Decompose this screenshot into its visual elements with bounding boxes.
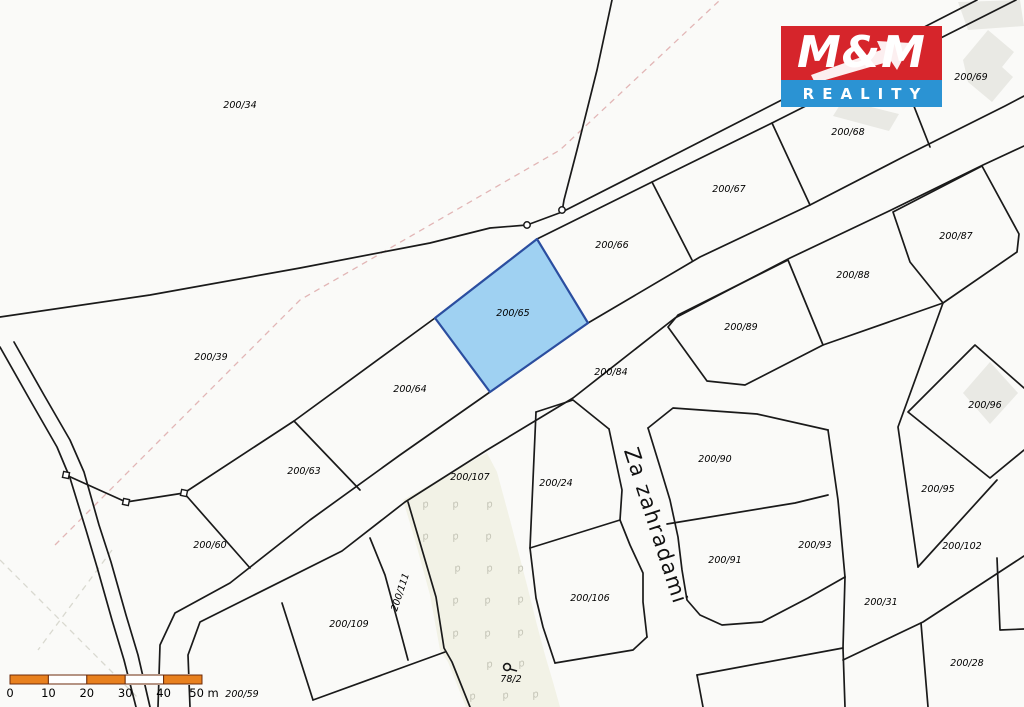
- logo-blue-box: REALITY: [781, 80, 942, 107]
- parcel-label-200-95: 200/95: [921, 484, 954, 495]
- parcel-label-200-89: 200/89: [724, 322, 757, 333]
- parcel-label-200-84: 200/84: [594, 367, 627, 378]
- parcel-label-200-34: 200/34: [223, 100, 256, 111]
- parcel-label-200-93: 200/93: [798, 540, 831, 551]
- highlighted-parcel-label: 200/65: [496, 308, 529, 319]
- parcel-label-200-91: 200/91: [708, 555, 741, 566]
- parcel-label-200-90: 200/90: [698, 454, 731, 465]
- scale-bar-tick-30: 30: [118, 686, 133, 700]
- parcel-label-200-88: 200/88: [836, 270, 869, 281]
- mm-reality-logo: M&M REALITY: [781, 26, 942, 107]
- parcel-label-200-102: 200/102: [942, 541, 981, 552]
- cadastral-map-stage: pppppppppppppppppppp200/34200/97200/6920…: [0, 0, 1024, 707]
- scale-bar-segment-1: [10, 675, 48, 684]
- scale-bar-tick-40: 40: [156, 686, 171, 700]
- parcel-label-200-59: 200/59: [225, 689, 258, 700]
- survey-point-square-icon: [122, 498, 129, 505]
- parcel-label-200-31: 200/31: [864, 597, 897, 608]
- parcel-label-200-64: 200/64: [393, 384, 426, 395]
- survey-point-circle-icon: [559, 207, 565, 213]
- parcel-label-200-28: 200/28: [950, 658, 983, 669]
- scale-bar-tick-0: 0: [6, 686, 13, 700]
- scale-bar-end-label: 50 m: [189, 686, 219, 700]
- logo-red-box: M&M: [781, 26, 942, 80]
- parcel-label-200-109: 200/109: [329, 619, 368, 630]
- logo-reality-text: REALITY: [795, 85, 929, 103]
- parcel-label-200-68: 200/68: [831, 127, 864, 138]
- scale-bar-segment-2: [48, 675, 86, 684]
- parcel-label-200-107: 200/107: [450, 472, 489, 483]
- logo-mm-text: M&M: [797, 26, 926, 80]
- parcel-label-200-96: 200/96: [968, 400, 1001, 411]
- parcel-label-200-69: 200/69: [954, 72, 987, 83]
- survey-point-square-icon: [62, 471, 69, 478]
- parcel-label-200-66: 200/66: [595, 240, 628, 251]
- scale-bar-segment-4: [125, 675, 163, 684]
- survey-point-square-icon: [180, 489, 187, 496]
- scale-bar-segment-5: [164, 675, 202, 684]
- parcel-label-200-63: 200/63: [287, 466, 320, 477]
- scale-bar-segment-3: [87, 675, 125, 684]
- parcel-label-200-24: 200/24: [539, 478, 572, 489]
- parcel-label-200-87: 200/87: [939, 231, 972, 242]
- parcel-label-200-67: 200/67: [712, 184, 745, 195]
- parcel-label-78-2: 78/2: [500, 674, 521, 685]
- scale-bar-tick-10: 10: [41, 686, 56, 700]
- parcel-label-200-39: 200/39: [194, 352, 227, 363]
- parcel-label-200-60: 200/60: [193, 540, 226, 551]
- survey-point-circle-icon: [524, 222, 530, 228]
- parcel-label-200-106: 200/106: [570, 593, 609, 604]
- scale-bar-tick-20: 20: [79, 686, 94, 700]
